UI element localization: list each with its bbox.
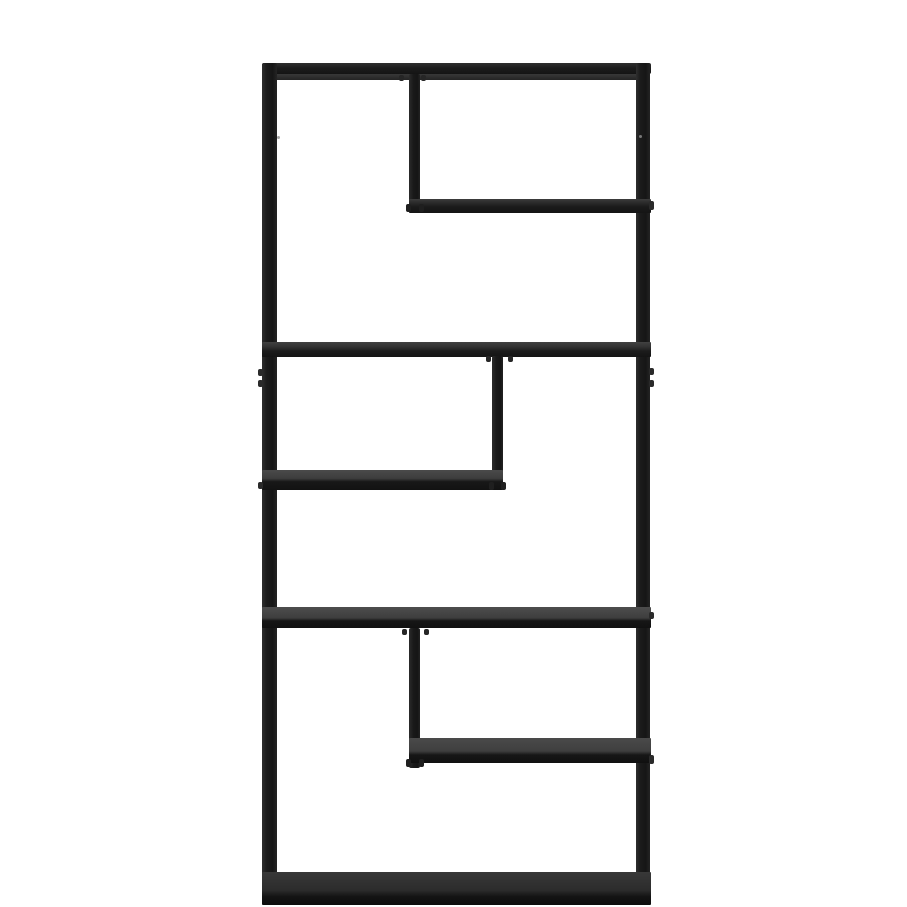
joint-nub <box>402 629 407 635</box>
shelf-right-half <box>409 738 651 763</box>
frame-top-bar <box>262 63 651 74</box>
frame-right-post <box>636 63 650 905</box>
shelf-middle-lower <box>262 607 651 628</box>
joint-foot <box>501 482 506 490</box>
joint-nub <box>508 356 513 362</box>
connector-bump <box>258 482 263 489</box>
shelf-middle-upper <box>262 342 651 357</box>
connector-bump <box>258 369 263 376</box>
etagere-unit <box>0 0 907 907</box>
joint-foot <box>419 759 424 767</box>
connector-bump <box>649 612 654 619</box>
joint-nub <box>424 629 429 635</box>
divider-post-1 <box>409 74 420 213</box>
top-shelf-lip <box>273 74 641 80</box>
connector-bump <box>258 380 263 387</box>
shelf-top-right <box>409 199 651 213</box>
joint-foot <box>419 204 424 212</box>
shelf-bottom <box>262 872 651 905</box>
joint-nub <box>421 75 426 81</box>
joint-nub <box>399 75 404 81</box>
connector-bump <box>649 755 654 764</box>
connector-bump <box>649 201 654 210</box>
connector-bump <box>649 368 654 375</box>
screw-dot <box>639 135 642 138</box>
screw-dot <box>277 136 280 139</box>
joint-nub <box>486 356 491 362</box>
joint-foot <box>406 759 411 767</box>
connector-bump <box>649 380 654 387</box>
joint-foot <box>406 204 411 212</box>
etagere-product-photo <box>0 0 907 907</box>
joint-foot <box>489 482 494 490</box>
shelf-left-half <box>262 470 503 490</box>
